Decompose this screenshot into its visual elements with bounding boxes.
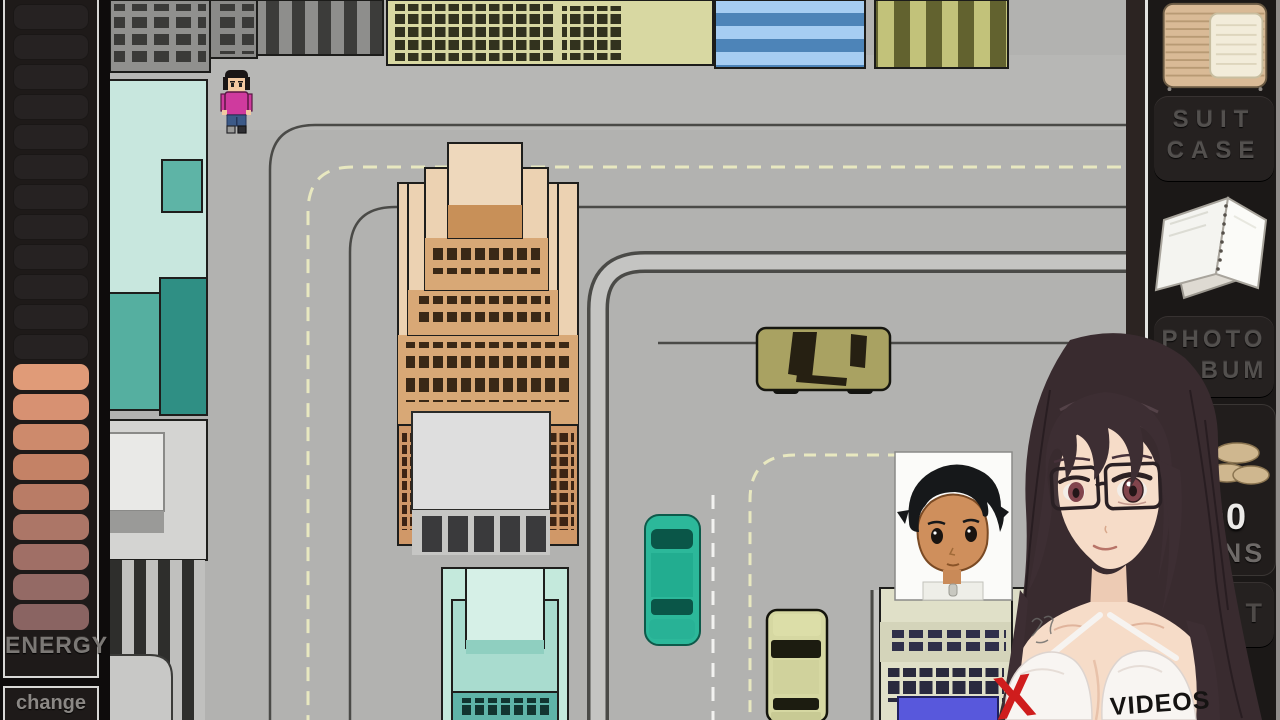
suitcase-button[interactable]: SUIT CASE (1154, 96, 1274, 182)
suitcase-label-line2: CASE (1154, 135, 1274, 166)
energy-segment-filled (13, 574, 89, 600)
energy-segment-empty (13, 4, 89, 30)
energy-panel: ENERGY (3, 0, 99, 678)
olive-building (875, 0, 1008, 68)
energy-segment-filled (13, 514, 89, 540)
energy-segment-empty (13, 304, 89, 330)
olive-car (757, 328, 890, 394)
striped-building (257, 0, 383, 55)
ziggurat-building (398, 143, 578, 555)
pale-yellow-car (767, 610, 827, 720)
vtuber-character-overlay: X VIDEOS (990, 330, 1280, 720)
blue-building (715, 0, 865, 68)
suitcase-icon[interactable] (1154, 0, 1274, 92)
energy-segment-filled (13, 604, 89, 630)
energy-segment-empty (13, 94, 89, 120)
energy-segment-empty (13, 214, 89, 240)
photo-album-icon[interactable] (1154, 190, 1274, 312)
energy-segment-empty (13, 184, 89, 210)
suitcase-label-line1: SUIT (1154, 104, 1274, 135)
energy-segment-empty (13, 64, 89, 90)
energy-segment-filled (13, 454, 89, 480)
energy-segment-empty (13, 154, 89, 180)
energy-segment-empty (13, 334, 89, 360)
mint-buildings (110, 80, 207, 720)
energy-segment-filled (13, 394, 89, 420)
energy-segment-filled (13, 424, 89, 450)
energy-segment-empty (13, 274, 89, 300)
change-button-label[interactable]: change (5, 692, 97, 715)
energy-segment-filled (13, 364, 89, 390)
teal-car (645, 515, 700, 645)
energy-segment-filled (13, 484, 89, 510)
energy-segment-empty (13, 34, 89, 60)
screen-right-edge (1276, 0, 1280, 720)
videos-logo-text: VIDEOS (1109, 686, 1211, 720)
energy-segment-filled (13, 544, 89, 570)
energy-segment-empty (13, 244, 89, 270)
mint-stepped-building (442, 568, 568, 720)
game-screen: ENERGY change (0, 0, 1280, 720)
energy-label: ENERGY (5, 632, 97, 659)
left-sidebar: ENERGY change (0, 0, 110, 720)
energy-bar (13, 4, 89, 634)
energy-segment-empty (13, 124, 89, 150)
change-panel[interactable]: change (3, 686, 99, 720)
